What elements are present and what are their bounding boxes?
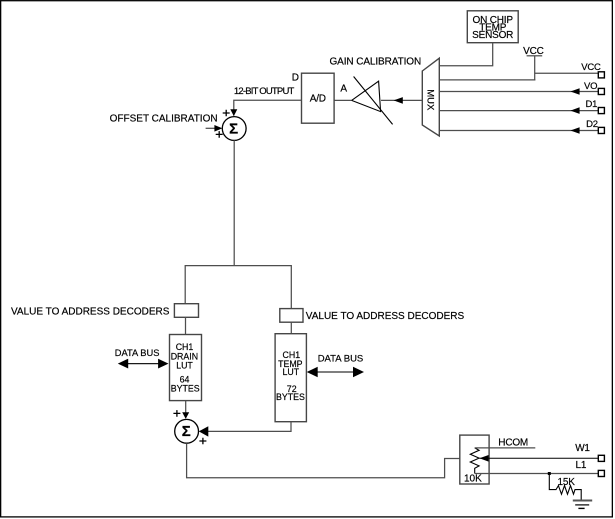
svg-text:LUT: LUT (282, 367, 299, 377)
svg-text:VCC: VCC (523, 46, 544, 57)
svg-text:SENSOR: SENSOR (472, 30, 513, 41)
svg-text:D1: D1 (585, 99, 597, 110)
svg-text:L1: L1 (576, 460, 587, 471)
svg-text:VCC: VCC (581, 62, 601, 73)
svg-text:Σ: Σ (229, 121, 238, 138)
svg-text:12-BIT OUTPUT: 12-BIT OUTPUT (234, 86, 295, 97)
svg-text:DATA BUS: DATA BUS (318, 354, 364, 365)
svg-text:D2: D2 (586, 119, 598, 130)
svg-text:LUT: LUT (176, 361, 193, 371)
svg-text:GAIN CALIBRATION: GAIN CALIBRATION (330, 56, 422, 67)
svg-text:A/D: A/D (310, 94, 326, 105)
svg-text:W1: W1 (575, 443, 590, 454)
svg-text:VALUE TO ADDRESS DECODERS: VALUE TO ADDRESS DECODERS (11, 306, 170, 317)
svg-text:Σ: Σ (182, 423, 191, 440)
svg-text:BYTES: BYTES (276, 392, 305, 402)
svg-text:15K: 15K (558, 477, 576, 488)
svg-text:VO: VO (584, 81, 597, 92)
svg-text:VALUE TO ADDRESS DECODERS: VALUE TO ADDRESS DECODERS (306, 311, 465, 322)
svg-text:DATA BUS: DATA BUS (115, 348, 160, 358)
svg-text:MUX: MUX (424, 89, 435, 111)
svg-text:A: A (340, 83, 347, 94)
svg-text:OFFSET CALIBRATION: OFFSET CALIBRATION (110, 113, 218, 124)
svg-text:BYTES: BYTES (171, 383, 200, 393)
svg-text:D: D (292, 72, 299, 83)
svg-text:10K: 10K (464, 474, 482, 485)
svg-text:HCOM: HCOM (498, 437, 528, 448)
